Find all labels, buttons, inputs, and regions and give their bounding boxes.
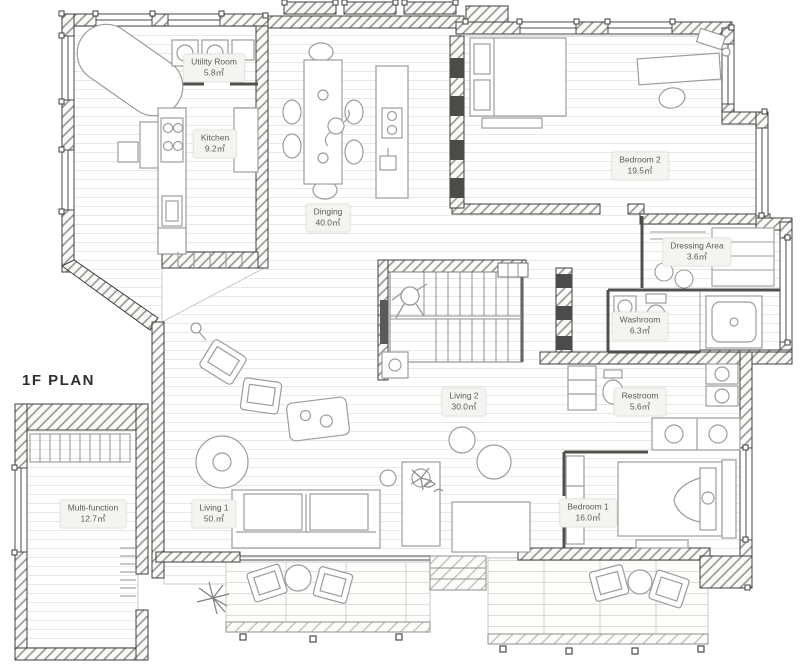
room-name: Bedroom 2 bbox=[619, 154, 661, 164]
room-area: 40.0㎡ bbox=[314, 218, 343, 229]
plan-title: 1F PLAN bbox=[22, 372, 95, 389]
room-name: Utility Room bbox=[191, 56, 237, 66]
room-name: Kitchen bbox=[201, 132, 229, 142]
room-name: Multi-function bbox=[68, 502, 119, 512]
room-name: Living 2 bbox=[449, 390, 478, 400]
floor-plan-drawing bbox=[0, 0, 800, 669]
room-label-bedroom-2: Bedroom 2 19.5㎡ bbox=[611, 151, 669, 180]
room-label-utility-room: Utility Room 5.8㎡ bbox=[183, 53, 245, 82]
room-area: 30.0㎡ bbox=[449, 402, 478, 413]
room-label-multi-function: Multi-function 12.7㎡ bbox=[60, 499, 127, 528]
room-label-living-2: Living 2 30.0㎡ bbox=[441, 387, 486, 416]
room-area: 50.㎡ bbox=[199, 514, 228, 525]
room-area: 6.3㎡ bbox=[620, 326, 661, 337]
room-area: 9.2㎡ bbox=[201, 144, 229, 155]
room-name: Living 1 bbox=[199, 502, 228, 512]
room-area: 3.6㎡ bbox=[670, 252, 723, 263]
floor-plan-page: 1F PLAN Utility Room 5.8㎡ Kitchen 9.2㎡ D… bbox=[0, 0, 800, 669]
room-name: Restroom bbox=[622, 390, 659, 400]
room-area: 12.7㎡ bbox=[68, 514, 119, 525]
room-label-restroom: Restroom 5.6㎡ bbox=[614, 387, 667, 416]
room-label-bedroom-1: Bedroom 1 16.0㎡ bbox=[559, 498, 617, 527]
room-label-kitchen: Kitchen 9.2㎡ bbox=[193, 129, 237, 158]
room-name: Bedroom 1 bbox=[567, 501, 609, 511]
room-name: Dressing Area bbox=[670, 240, 723, 250]
room-name: Dinging bbox=[314, 206, 343, 216]
room-label-living-1: Living 1 50.㎡ bbox=[191, 499, 236, 528]
room-area: 5.8㎡ bbox=[191, 68, 237, 79]
room-label-dinging: Dinging 40.0㎡ bbox=[306, 203, 351, 232]
room-area: 19.5㎡ bbox=[619, 166, 661, 177]
room-area: 16.0㎡ bbox=[567, 513, 609, 524]
room-area: 5.6㎡ bbox=[622, 402, 659, 413]
room-label-washroom: Washroom 6.3㎡ bbox=[612, 311, 669, 340]
room-label-dressing-area: Dressing Area 3.6㎡ bbox=[662, 237, 731, 266]
room-name: Washroom bbox=[620, 314, 661, 324]
